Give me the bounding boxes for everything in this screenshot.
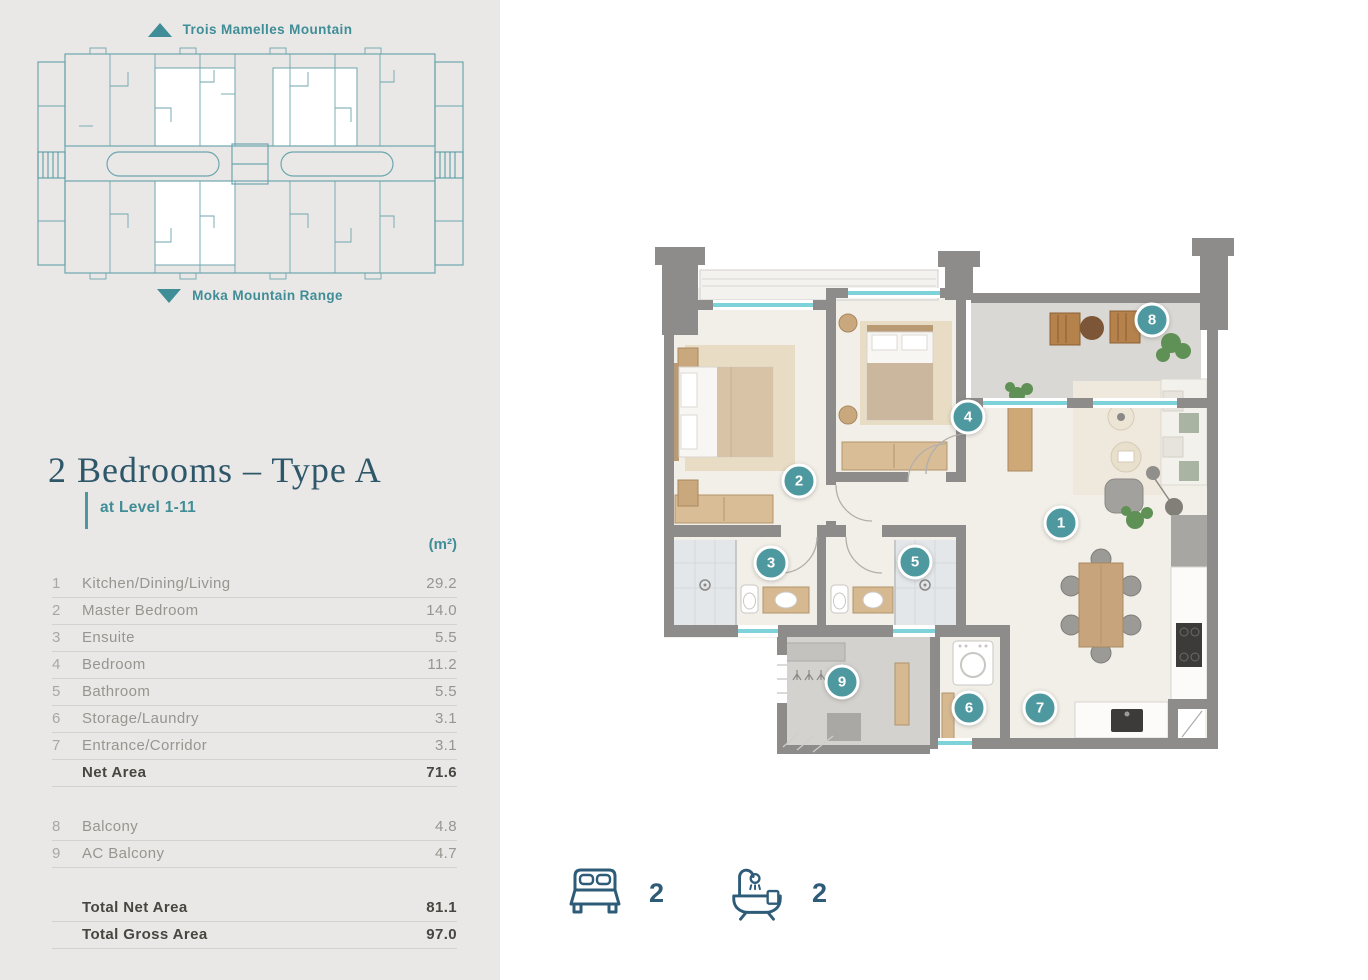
bedroom-count: 2 (649, 878, 664, 909)
mountain-down-triangle-icon (157, 289, 181, 303)
bathroom-count: 2 (812, 878, 827, 909)
keyplan-top-label-text: Trois Mamelles Mountain (183, 22, 353, 37)
page-title: 2 Bedrooms – Type A (48, 449, 382, 491)
room-marker-1: 1 (1044, 506, 1079, 541)
table-row: 8 Balcony 4.8 (52, 814, 457, 841)
bed-icon (565, 865, 625, 921)
level-subtitle: at Level 1-11 (100, 499, 196, 517)
table-gap (52, 787, 457, 814)
room-marker-6: 6 (952, 691, 987, 726)
keyplan-bottom-label-text: Moka Mountain Range (192, 288, 343, 303)
keyplan-highlight-unit (155, 181, 235, 265)
keyplan-outline (38, 54, 463, 273)
table-row: 6 Storage/Laundry 3.1 (52, 706, 457, 733)
bathtub-icon (726, 864, 788, 922)
mountain-up-triangle-icon (148, 23, 172, 37)
room-marker-3: 3 (754, 546, 789, 581)
total-net-area-row: Total Net Area 81.1 (52, 895, 457, 922)
area-table: (m²) 1 Kitchen/Dining/Living 29.2 2 Mast… (52, 536, 457, 949)
table-row: 3 Ensuite 5.5 (52, 625, 457, 652)
floorplan: 1 2 3 4 5 6 7 8 9 (655, 233, 1247, 770)
room-marker-2: 2 (782, 464, 817, 499)
room-marker-9: 9 (825, 665, 860, 700)
sidebar: Trois Mamelles Mountain (0, 0, 500, 980)
keyplan-south-label: Moka Mountain Range (35, 288, 465, 303)
brochure-page: Trois Mamelles Mountain (0, 0, 1368, 980)
room-marker-4: 4 (951, 400, 986, 435)
unit-header: (m²) (52, 536, 457, 558)
table-row: 4 Bedroom 11.2 (52, 652, 457, 679)
room-marker-8: 8 (1135, 303, 1170, 338)
net-area-row: Net Area 71.6 (52, 760, 457, 787)
room-marker-5: 5 (898, 545, 933, 580)
table-row: 2 Master Bedroom 14.0 (52, 598, 457, 625)
table-gap (52, 868, 457, 895)
table-row: 9 AC Balcony 4.7 (52, 841, 457, 868)
keyplan-north-label: Trois Mamelles Mountain (35, 22, 465, 37)
subtitle-accent-bar (85, 492, 88, 529)
table-row: 1 Kitchen/Dining/Living 29.2 (52, 571, 457, 598)
unit-summary: 2 2 (565, 864, 827, 922)
keyplan-highlight-unit (155, 68, 235, 146)
table-row: 5 Bathroom 5.5 (52, 679, 457, 706)
keyplan-stairs (38, 152, 463, 178)
room-marker-7: 7 (1023, 691, 1058, 726)
table-row: 7 Entrance/Corridor 3.1 (52, 733, 457, 760)
keyplan-highlight-unit (273, 68, 357, 146)
building-keyplan (35, 46, 465, 284)
total-gross-area-row: Total Gross Area 97.0 (52, 922, 457, 949)
